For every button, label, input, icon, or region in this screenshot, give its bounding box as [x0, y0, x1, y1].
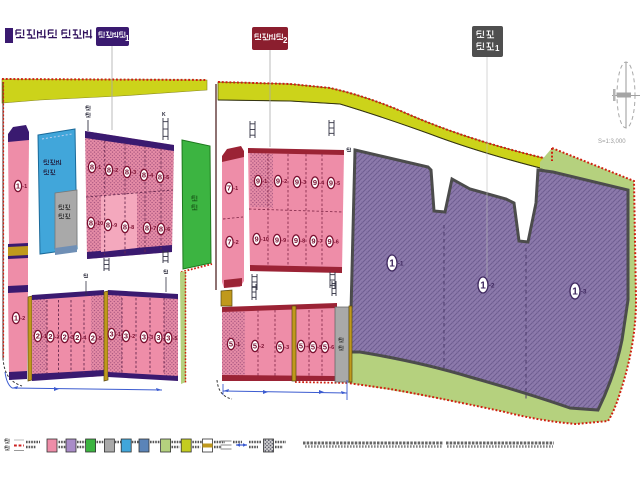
svg-text:-5: -5 — [97, 336, 102, 342]
svg-text:-1: -1 — [262, 179, 267, 185]
svg-text:5: 5 — [278, 343, 282, 352]
svg-text:1: 1 — [14, 314, 18, 323]
svg-text:2: 2 — [48, 332, 52, 341]
svg-text:8: 8 — [125, 168, 129, 177]
svg-text:8: 8 — [159, 225, 163, 234]
svg-text:-9: -9 — [112, 223, 117, 229]
svg-text:-2: -2 — [259, 344, 264, 350]
svg-text:S=1:3,000: S=1:3,000 — [598, 139, 626, 145]
svg-text:9: 9 — [256, 177, 260, 186]
svg-text:2: 2 — [75, 333, 79, 342]
svg-text:8: 8 — [142, 171, 146, 180]
svg-text:9: 9 — [255, 235, 259, 244]
svg-text:3: 3 — [110, 330, 114, 339]
svg-text:3: 3 — [124, 332, 128, 341]
svg-text:1: 1 — [16, 182, 20, 191]
svg-text:-2: -2 — [113, 168, 118, 174]
svg-text:-9: -9 — [281, 238, 286, 244]
svg-text:7: 7 — [227, 238, 231, 247]
svg-text:-3: -3 — [131, 170, 136, 176]
svg-text:1: 1 — [480, 281, 486, 292]
svg-text:-5: -5 — [173, 336, 178, 342]
svg-text:-3: -3 — [301, 180, 306, 186]
svg-text:-1: -1 — [96, 165, 101, 171]
svg-text:2: 2 — [36, 332, 40, 341]
svg-text:2: 2 — [91, 334, 95, 343]
svg-text:5: 5 — [229, 340, 233, 349]
svg-text:1: 1 — [125, 34, 130, 43]
svg-text:-1: -1 — [235, 342, 240, 348]
svg-text:2: 2 — [283, 36, 288, 45]
svg-text:5: 5 — [253, 342, 257, 351]
svg-text:-2: -2 — [55, 335, 60, 341]
svg-text:9: 9 — [276, 177, 280, 186]
svg-text:-10: -10 — [95, 221, 103, 227]
svg-text:-3: -3 — [284, 345, 289, 351]
svg-text:-2: -2 — [130, 334, 135, 340]
svg-text:3: 3 — [156, 333, 160, 342]
svg-text:8: 8 — [123, 223, 127, 232]
svg-text:9: 9 — [294, 236, 298, 245]
svg-text:8: 8 — [106, 221, 110, 230]
svg-text:-5: -5 — [335, 181, 340, 187]
svg-text:-5: -5 — [164, 175, 169, 181]
svg-text:-3: -3 — [148, 335, 153, 341]
svg-text:-1: -1 — [116, 332, 121, 338]
svg-text:-10: -10 — [261, 237, 269, 243]
svg-text:-7: -7 — [318, 239, 323, 245]
svg-text:5: 5 — [323, 343, 327, 352]
svg-text:9: 9 — [328, 237, 332, 246]
svg-text:1: 1 — [495, 44, 500, 53]
svg-text:9: 9 — [311, 237, 315, 246]
svg-text:-8: -8 — [300, 239, 305, 245]
svg-text:2: 2 — [63, 333, 67, 342]
svg-text:8: 8 — [145, 224, 149, 233]
svg-text:-2: -2 — [20, 316, 25, 322]
svg-text:K: K — [162, 112, 166, 118]
svg-text:-2: -2 — [489, 283, 495, 290]
svg-text:9: 9 — [295, 178, 299, 187]
svg-text:-6: -6 — [165, 227, 170, 233]
svg-text:8: 8 — [89, 219, 93, 228]
svg-text:9: 9 — [313, 178, 317, 187]
svg-text:-2: -2 — [234, 240, 239, 246]
svg-text:3: 3 — [166, 334, 170, 343]
svg-text:-1: -1 — [233, 186, 238, 192]
svg-text:8: 8 — [107, 166, 111, 175]
svg-text:-3: -3 — [581, 289, 587, 296]
svg-text:-6: -6 — [334, 240, 339, 246]
svg-text:1: 1 — [389, 259, 395, 270]
svg-text:8: 8 — [158, 173, 162, 182]
svg-text:-1: -1 — [398, 261, 404, 268]
svg-text:5: 5 — [311, 343, 315, 352]
svg-text:-2: -2 — [282, 179, 287, 185]
svg-text:1: 1 — [572, 287, 578, 298]
svg-text:-7: -7 — [151, 226, 156, 232]
svg-text:-1: -1 — [22, 184, 27, 190]
svg-text:-6: -6 — [329, 345, 334, 351]
svg-text:9: 9 — [275, 236, 279, 245]
svg-text:9: 9 — [329, 179, 333, 188]
svg-text:5: 5 — [299, 342, 303, 351]
svg-text:7: 7 — [227, 184, 231, 193]
svg-text:-8: -8 — [129, 225, 134, 231]
svg-text:3: 3 — [142, 333, 146, 342]
svg-text:8: 8 — [90, 163, 94, 172]
